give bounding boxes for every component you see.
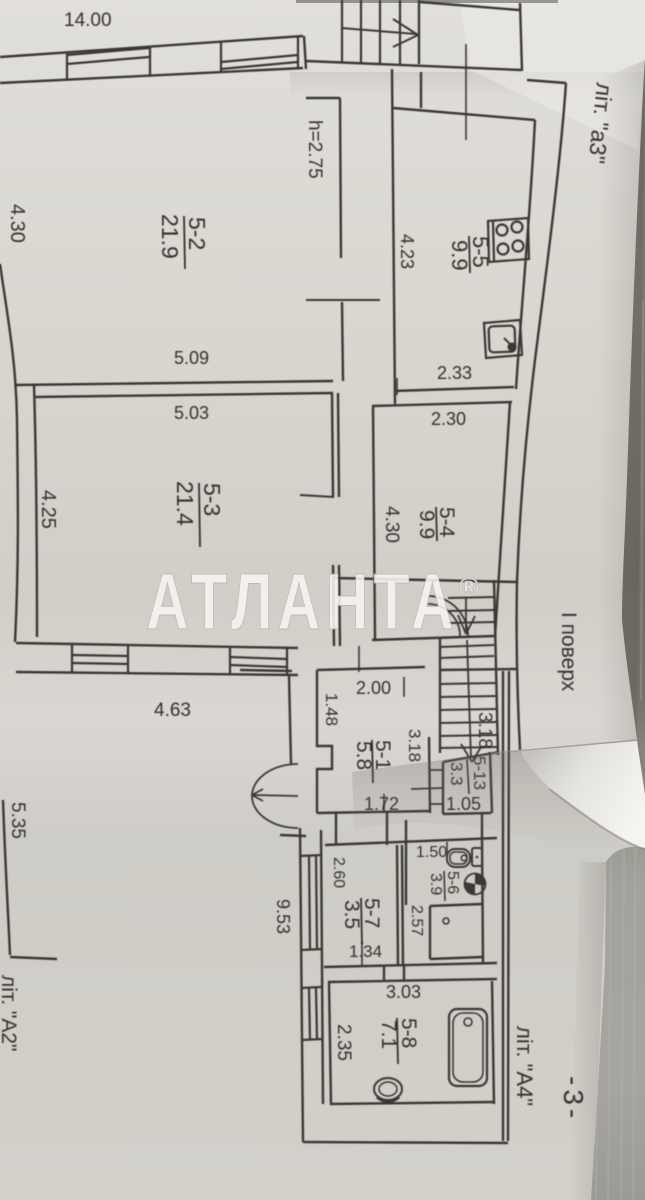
svg-text:®: ®	[459, 572, 479, 602]
svg-text:9.9: 9.9	[447, 240, 472, 271]
svg-text:14.00: 14.00	[64, 10, 112, 31]
svg-text:2.60: 2.60	[330, 857, 347, 888]
svg-text:3.03: 3.03	[386, 982, 421, 1002]
svg-text:4.30: 4.30	[6, 204, 28, 243]
svg-text:4.30: 4.30	[381, 506, 402, 543]
svg-text:2.35: 2.35	[333, 1024, 354, 1061]
svg-text:3.18: 3.18	[474, 712, 495, 749]
svg-text:літ. "А2": літ. "А2"	[0, 975, 20, 1051]
svg-text:2.57: 2.57	[408, 905, 425, 936]
svg-text:5.03: 5.03	[174, 403, 209, 423]
svg-text:3.18: 3.18	[405, 729, 424, 762]
svg-text:4.63: 4.63	[154, 700, 191, 721]
svg-text:h=2.75: h=2.75	[304, 120, 325, 179]
svg-text:4.25: 4.25	[37, 490, 59, 529]
svg-text:5-3: 5-3	[199, 483, 225, 516]
svg-text:9.9: 9.9	[415, 510, 438, 539]
svg-text:3.5: 3.5	[340, 900, 363, 929]
svg-text:4.23: 4.23	[397, 234, 417, 269]
svg-text:2.30: 2.30	[431, 409, 466, 429]
svg-text:І поверх: І поверх	[557, 612, 580, 692]
svg-text:5.35: 5.35	[7, 802, 28, 839]
svg-text:2.33: 2.33	[437, 363, 472, 383]
svg-text:1.48: 1.48	[322, 693, 341, 726]
svg-text:3.9: 3.9	[427, 873, 444, 895]
svg-text:5-6: 5-6	[444, 871, 461, 894]
svg-text:літ. "А4": літ. "А4"	[512, 1026, 537, 1106]
svg-text:9.53: 9.53	[273, 899, 293, 934]
svg-text:2.00: 2.00	[356, 678, 391, 698]
svg-text:1.34: 1.34	[349, 942, 382, 961]
svg-text:5-2: 5-2	[184, 217, 210, 250]
svg-text:1.50: 1.50	[416, 844, 447, 861]
svg-text:АТЛАНТА: АТЛАНТА	[146, 556, 459, 646]
svg-text:21.4: 21.4	[172, 481, 198, 526]
svg-text:21.9: 21.9	[157, 214, 183, 259]
svg-text:5.09: 5.09	[174, 348, 209, 368]
